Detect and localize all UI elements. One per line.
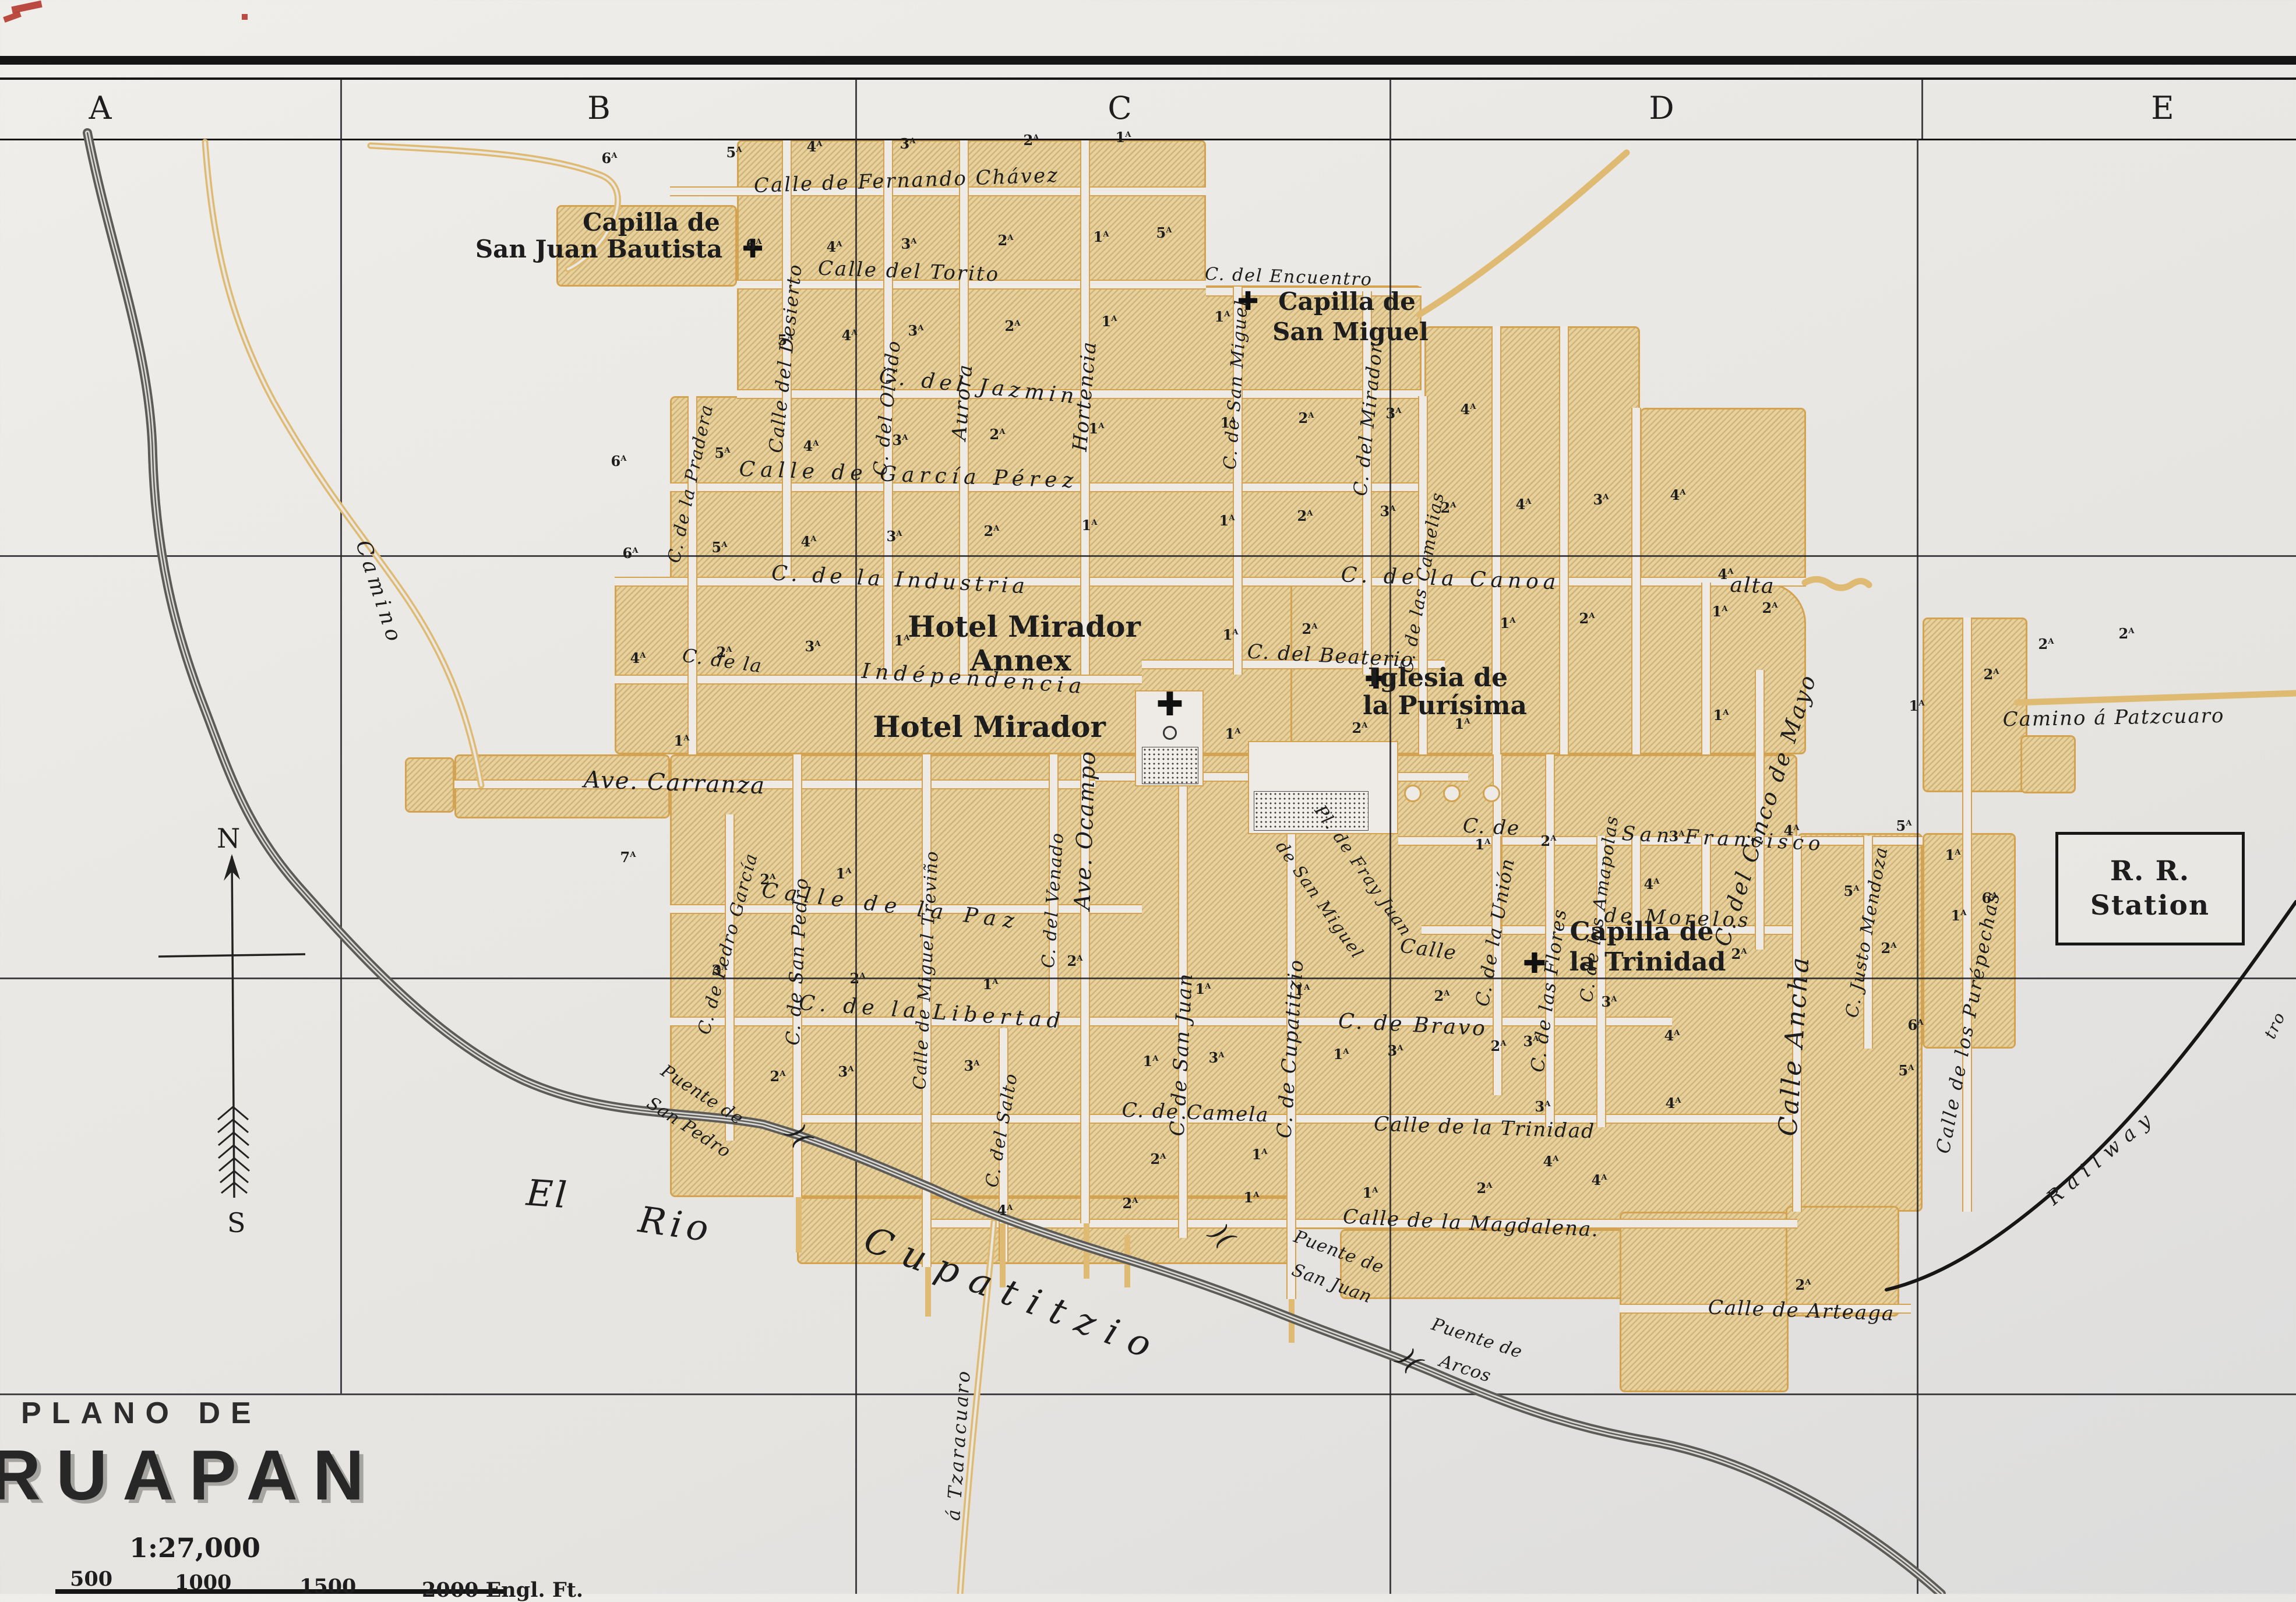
block-number: 7A [620,851,636,864]
block-number: 1A [1334,1047,1349,1061]
block-number: 3A [1535,1100,1551,1114]
block-number: 2A [1541,834,1557,848]
landmark-label: la Trinidad [1570,950,1726,975]
block-number: 2A [2119,627,2135,641]
block-number: 3A [1388,1044,1403,1058]
block-number: 1A [1215,310,1230,324]
block-number: 4A [1543,1155,1559,1169]
block-number: 2A [770,1070,786,1084]
block-number: 1A [1712,605,1728,619]
block-number: 1A [836,867,852,881]
block-number: 6A [602,151,618,165]
compass-south-label: S [227,1207,246,1238]
road [205,142,481,785]
landmark-label: la Purísima [1363,693,1527,719]
block-number: 1A [1363,1186,1378,1200]
scale-bar-label: 1500 [299,1575,356,1599]
block-number: 1A [1909,699,1925,713]
block-number: 2A [2038,637,2054,651]
block-number: 1A [1225,727,1241,741]
block-number: 6A [746,238,762,252]
block-number: 1A [1223,628,1239,642]
block-number: 4A [997,1204,1013,1218]
block-number: 2A [850,972,866,986]
block-number: 2A [1762,601,1778,615]
landmark-label: Annex [970,646,1071,675]
block-number: 2A [1297,509,1313,523]
block-number: 5A [1899,1064,1914,1078]
block-number: 5A [1156,226,1172,240]
block-number: 2A [1005,319,1021,333]
map-canvas: R. R. Station N S PLANO DE RUAPAN 1:27,0… [0,0,2296,1594]
block-number: 3A [964,1059,980,1073]
landmark-label: Iglesia de [1368,665,1508,691]
road [1805,579,1869,588]
block-number: 2A [1731,947,1747,961]
grid-column-letter: E [2151,93,2174,124]
compass-rose-icon [140,816,338,1235]
map-title-kicker: PLANO DE [21,1396,262,1431]
block-number: 1A [674,734,690,748]
rr-station-line2: Station [2090,889,2210,923]
street-label: Aurora [949,363,975,441]
river-inner [87,133,1941,1594]
block-number: 4A [801,535,817,549]
river [87,133,1941,1594]
block-number: 1A [1475,838,1491,852]
block-number: 1A [1713,708,1729,722]
road [1419,153,1627,315]
block-number: 1A [1116,130,1131,144]
block-number: 2A [1434,989,1450,1003]
street-label: C. de Camela [1121,1100,1269,1125]
block-number: 3A [1602,995,1617,1009]
block-number: 2A [1067,954,1083,968]
scale-bar-label: 500 [70,1567,112,1591]
block-number: 3A [1386,407,1402,421]
block-number: 2A [1151,1152,1166,1166]
block-number: 2A [1302,622,1318,636]
street-label: alta [1730,575,1775,598]
street-label: C. de [1462,816,1521,838]
block-number: 4A [1644,877,1660,891]
block-number: 1A [1219,514,1235,528]
block-number: 3A [908,324,924,338]
grid-column-letter: D [1649,93,1674,124]
block-number: 3A [1380,504,1396,518]
landmark-label: Hotel Mirador [873,712,1106,742]
map-title: RUAPAN [0,1434,379,1516]
block-number: 3A [1593,493,1609,507]
block-number: 5A [1896,819,1912,833]
landmark-label: Capilla de [1278,290,1416,314]
block-number: 1A [1945,848,1961,862]
block-number: 4A [1592,1173,1607,1187]
block-number: 2A [998,234,1014,248]
block-number: 4A [1664,1029,1680,1043]
block-number: 2A [984,524,1000,538]
block-number: 3A [901,237,917,251]
scale-bar-label: 2000 Engl. Ft. [422,1578,583,1602]
river-label: El [525,1175,570,1214]
street-label: Calle de Arteaga [1708,1297,1895,1324]
church-cross-icon: ✚ [1156,689,1184,721]
block-number: 1A [1143,1054,1159,1068]
landmark-label: Capilla de [1570,919,1713,945]
block-number: 6A [1908,1018,1924,1032]
block-number: 5A [715,446,731,460]
block-number: 4A [807,140,823,154]
river-label: Rio [636,1201,715,1247]
road [2017,693,2296,703]
block-number: 5A [726,146,742,160]
block-number: 4A [1516,497,1532,511]
block-number: 2A [1299,411,1314,425]
block-number: 3A [838,1065,854,1079]
grid-column-letter: A [89,93,112,124]
block-number: 1A [1252,1148,1268,1162]
block-number: 2A [1881,941,1897,955]
block-number: 6A [623,546,639,560]
street-label: Calle del Torito [817,259,1000,285]
grid-column-letter: C [1108,93,1131,124]
grid-column-letter: B [587,93,611,124]
block-number: 3A [1209,1051,1225,1065]
map-scale-ratio: 1:27,000 [129,1532,260,1564]
block-number: 4A [1666,1096,1681,1110]
landmark-label: Capilla de [583,210,720,235]
block-number: 4A [827,240,842,254]
block-number: 5A [712,541,728,555]
compass-north-label: N [217,823,240,854]
street-label: Ave. Carranza [583,768,766,798]
block-number: 2A [1123,1197,1138,1211]
block-number: 1A [1195,982,1211,996]
road-inner [205,142,481,785]
landmark-label: San Miguel [1272,320,1429,344]
rr-station-line1: R. R. [2110,855,2190,889]
block-number: 6A [611,454,627,468]
street-label: Ave. Ocampo [1071,750,1099,911]
scale-bar-label: 1000 [175,1571,231,1594]
block-number: 1A [1102,315,1117,329]
block-number: 2A [1796,1278,1811,1292]
block-number: 2A [1984,668,1999,682]
block-number: 4A [1461,403,1476,417]
block-number: 2A [1352,721,1368,735]
block-number: 2A [1024,133,1039,147]
block-number: 4A [842,329,858,343]
block-number: 1A [1500,616,1516,630]
block-number: 3A [900,137,916,151]
print-mark [242,14,248,20]
block-number: 2A [1579,612,1595,626]
block-number: 1A [1082,518,1098,532]
block-number: 2A [1477,1181,1493,1195]
landmark-label: San Juan Bautista [475,237,722,262]
river-center [87,133,1941,1594]
block-number: 4A [803,439,819,453]
block-number: 1A [983,978,999,991]
block-number: 1A [1094,230,1109,244]
block-number: 3A [887,530,902,544]
block-number: 4A [1670,488,1686,502]
rr-station-box: R. R. Station [2055,832,2245,945]
block-number: 1A [1244,1191,1260,1205]
block-number: 2A [990,428,1006,442]
landmark-label: Hotel Mirador [908,612,1141,641]
street-label: Camino á Patzcuaro [2002,706,2224,730]
block-number: 2A [1491,1039,1507,1053]
block-number: 4A [630,651,646,665]
block-number: 3A [805,640,821,654]
block-number: 1A [1951,909,1967,923]
block-number: 5A [1844,884,1860,898]
